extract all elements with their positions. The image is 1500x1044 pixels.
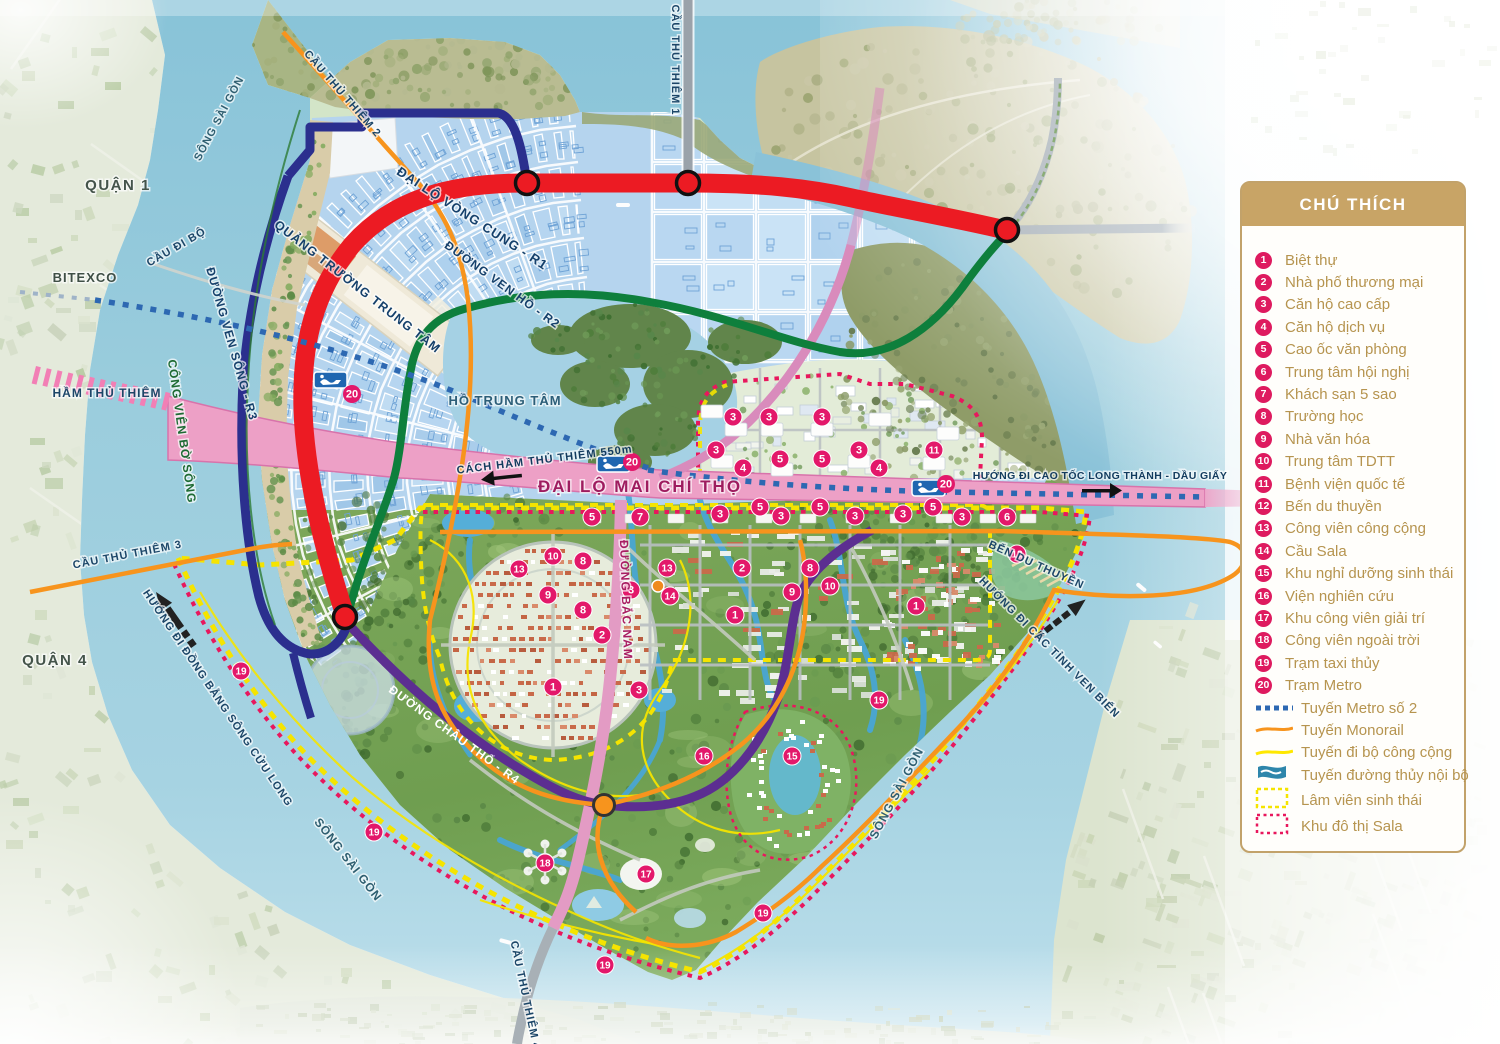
svg-text:13: 13	[661, 564, 673, 575]
svg-text:ĐẠI LỘ MAI CHÍ THỌ: ĐẠI LỘ MAI CHÍ THỌ	[538, 477, 742, 496]
svg-text:15: 15	[786, 752, 798, 763]
svg-text:CẦU THỦ THIÊM 1: CẦU THỦ THIÊM 1	[669, 5, 682, 116]
svg-text:5: 5	[757, 502, 763, 514]
svg-text:5: 5	[589, 512, 595, 524]
svg-text:14: 14	[664, 592, 676, 603]
svg-text:4: 4	[876, 463, 883, 475]
svg-text:6: 6	[1004, 512, 1010, 524]
svg-text:2: 2	[739, 563, 745, 575]
svg-text:3: 3	[959, 512, 965, 524]
svg-text:HẦM THỦ THIÊM: HẦM THỦ THIÊM	[53, 385, 162, 400]
svg-text:19: 19	[757, 909, 769, 920]
svg-text:1: 1	[732, 610, 738, 622]
svg-text:5: 5	[819, 454, 825, 466]
svg-text:9: 9	[545, 590, 551, 602]
svg-text:4: 4	[740, 463, 747, 475]
svg-text:8: 8	[580, 556, 586, 568]
svg-text:3: 3	[717, 509, 723, 521]
svg-text:3: 3	[730, 412, 736, 424]
svg-text:5: 5	[817, 502, 823, 514]
svg-text:3: 3	[766, 412, 772, 424]
svg-text:16: 16	[698, 752, 710, 763]
svg-text:3: 3	[819, 412, 825, 424]
svg-text:1: 1	[913, 601, 919, 613]
svg-text:20: 20	[626, 457, 638, 469]
svg-text:7: 7	[637, 512, 643, 524]
svg-text:QUẬN 1: QUẬN 1	[85, 176, 151, 194]
svg-text:3: 3	[636, 685, 642, 697]
svg-text:17: 17	[640, 870, 652, 881]
svg-text:3: 3	[778, 511, 784, 523]
svg-text:QUẬN 4: QUẬN 4	[22, 651, 88, 669]
svg-text:19: 19	[368, 828, 380, 839]
svg-text:18: 18	[539, 859, 551, 870]
svg-text:2: 2	[599, 630, 605, 642]
svg-text:3: 3	[856, 445, 862, 457]
svg-text:5: 5	[930, 502, 936, 514]
svg-text:3: 3	[852, 511, 858, 523]
svg-text:19: 19	[873, 696, 885, 707]
svg-text:BITEXCO: BITEXCO	[53, 270, 118, 285]
svg-text:13: 13	[513, 565, 525, 576]
svg-text:8: 8	[807, 563, 813, 575]
svg-text:10: 10	[547, 552, 559, 563]
svg-text:19: 19	[235, 667, 247, 678]
svg-text:9: 9	[789, 587, 795, 599]
svg-text:20: 20	[940, 479, 952, 491]
svg-text:11: 11	[929, 446, 940, 457]
svg-text:3: 3	[900, 509, 906, 521]
svg-text:HƯỚNG ĐI CAO TỐC LONG THÀNH -: HƯỚNG ĐI CAO TỐC LONG THÀNH - DẦU GIẤY	[973, 468, 1228, 482]
svg-text:1: 1	[550, 682, 556, 694]
svg-text:5: 5	[777, 454, 783, 466]
svg-text:3: 3	[713, 445, 719, 457]
svg-text:20: 20	[346, 389, 358, 401]
svg-text:HỒ TRUNG TÂM: HỒ TRUNG TÂM	[448, 393, 561, 408]
svg-text:8: 8	[580, 605, 586, 617]
svg-text:19: 19	[599, 961, 611, 972]
svg-text:10: 10	[824, 582, 836, 593]
